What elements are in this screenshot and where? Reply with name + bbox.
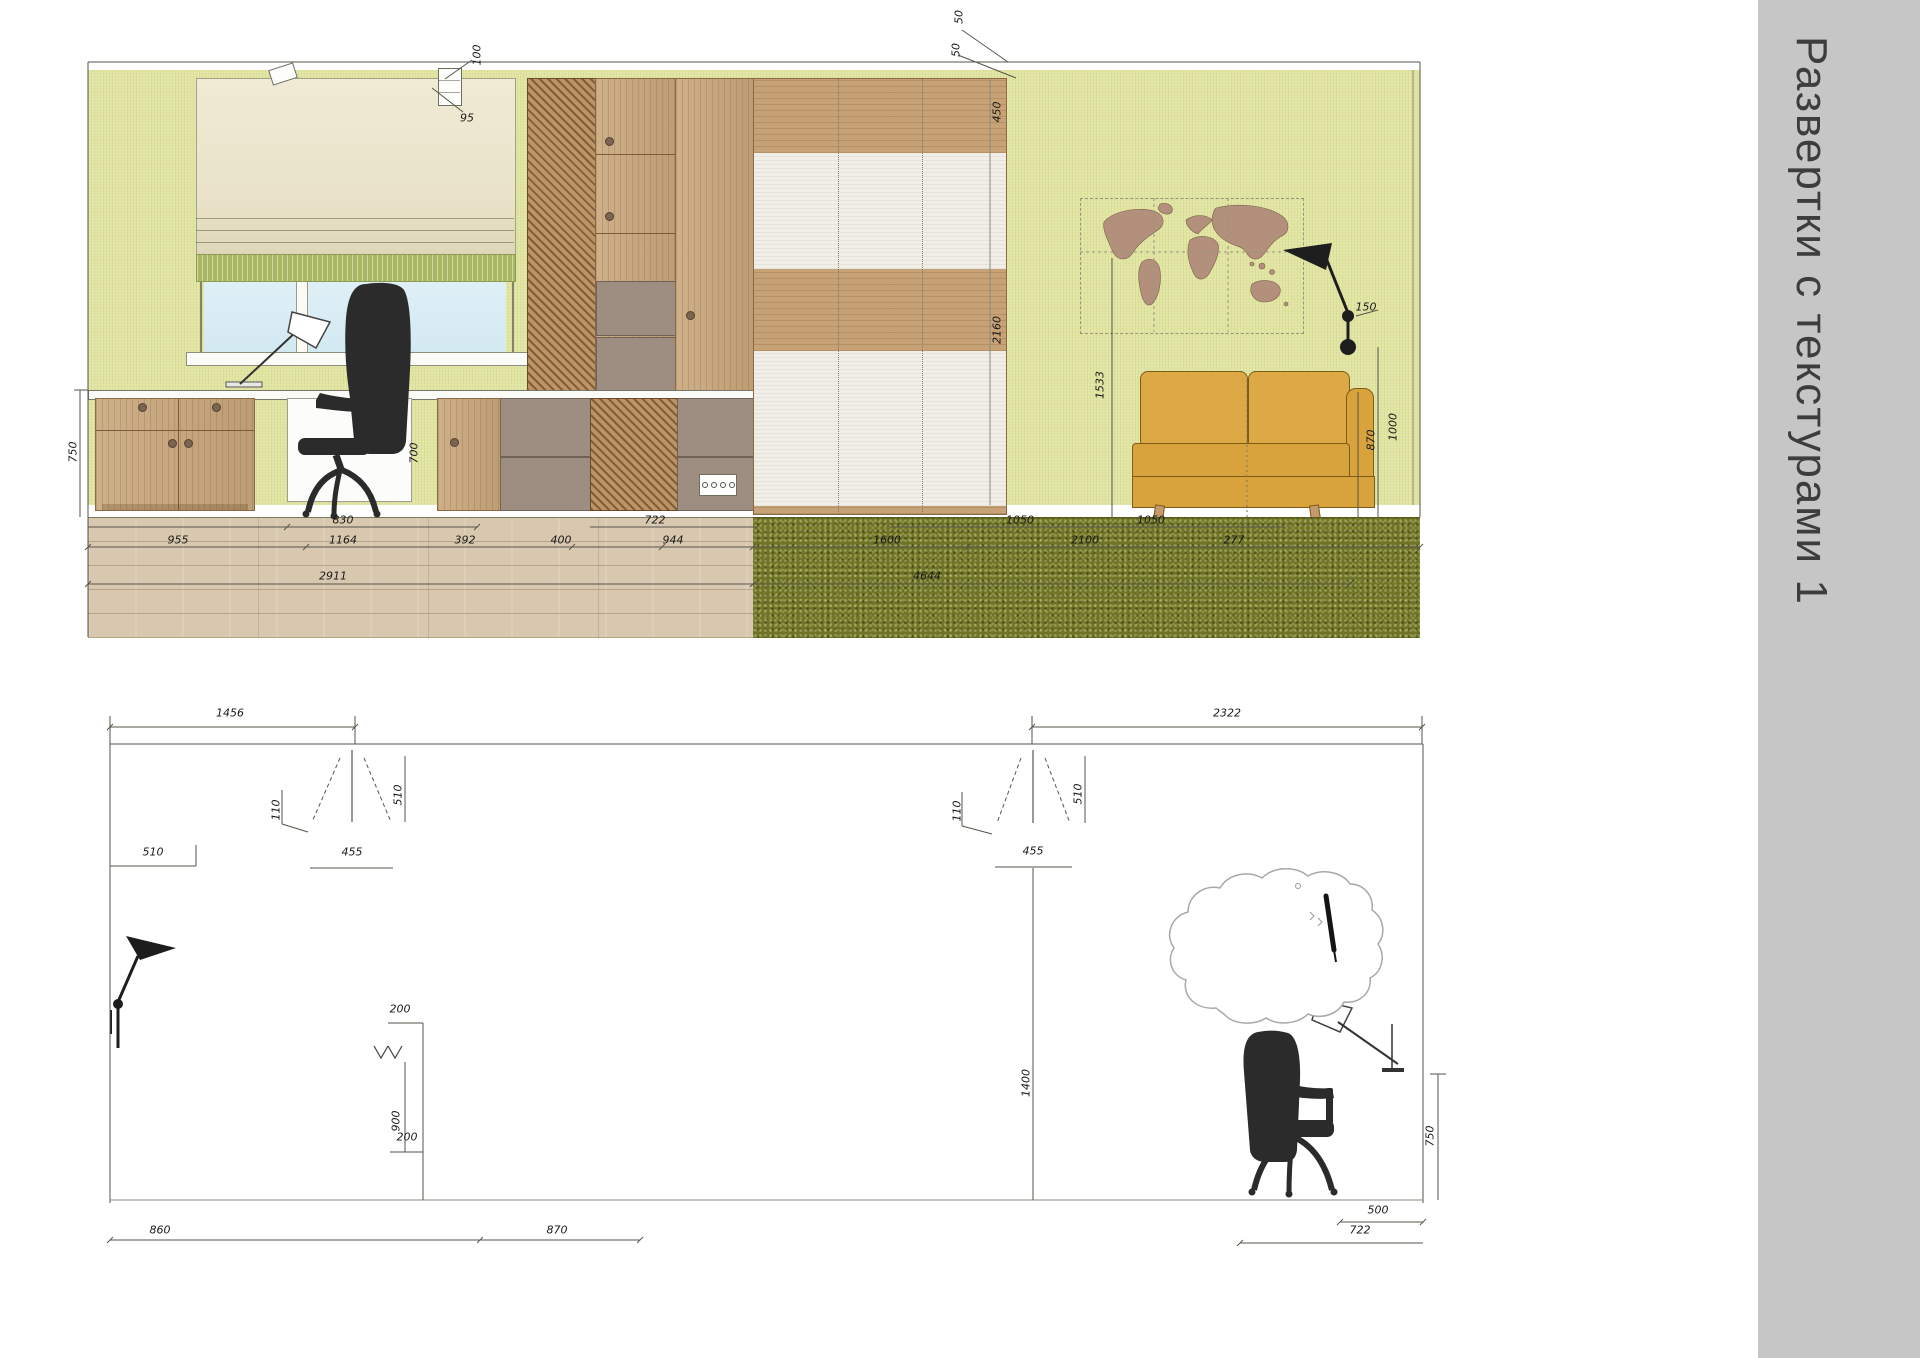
dimension-label: 722	[1350, 1224, 1371, 1237]
drawing-sheet: MEOW	[0, 0, 1920, 1358]
dimension-label: 2322	[1213, 707, 1241, 720]
dimension-label: 1400	[1020, 1069, 1033, 1097]
dimension-label: 1600	[873, 534, 901, 547]
dimension-label: 50	[950, 43, 963, 57]
dimension-label: 150	[1356, 301, 1377, 314]
dimension-label: 944	[663, 534, 684, 547]
dimension-label: 110	[270, 800, 283, 821]
dimension-label: 870	[1365, 430, 1378, 451]
dimension-label: 200	[397, 1131, 418, 1144]
dimension-label: 900	[390, 1111, 403, 1132]
dimension-label: 1164	[329, 534, 357, 547]
dimension-label: 510	[1072, 784, 1085, 805]
dimension-label: 510	[143, 846, 164, 859]
dimension-label: 1000	[1387, 413, 1400, 441]
dimension-label: 100	[471, 45, 484, 66]
dimension-label: 392	[455, 534, 476, 547]
dimension-label: 955	[168, 534, 189, 547]
dimension-label: 1050	[1137, 514, 1165, 527]
dimension-label: 830	[333, 514, 354, 527]
dimension-label: 200	[390, 1003, 411, 1016]
dimension-label: 2911	[319, 570, 347, 583]
dimension-label: 4644	[913, 570, 941, 583]
dimension-label: 500	[1368, 1204, 1389, 1217]
dimension-label: 700	[408, 443, 421, 464]
dimension-label: 870	[547, 1224, 568, 1237]
dimension-label: 50	[953, 10, 966, 24]
dimension-label: 95	[460, 112, 474, 125]
dimension-label: 450	[991, 102, 1004, 123]
dimension-label: 277	[1224, 534, 1245, 547]
dimension-label: 455	[342, 846, 363, 859]
dimension-layer: 7501009550504502160153315087010007008307…	[0, 0, 1920, 1358]
sheet-title: Развертки с текстурами 1	[1786, 36, 1836, 606]
dimension-label: 1456	[216, 707, 244, 720]
dimension-label: 510	[392, 785, 405, 806]
sidebar: Развертки с текстурами 1	[1758, 0, 1920, 1358]
dimension-label: 2100	[1071, 534, 1099, 547]
dimension-label: 860	[150, 1224, 171, 1237]
dimension-label: 722	[645, 514, 666, 527]
dimension-label: 455	[1023, 845, 1044, 858]
dimension-label: 1533	[1094, 371, 1107, 399]
dimension-label: 750	[67, 442, 80, 463]
dimension-label: 2160	[991, 316, 1004, 344]
dimension-label: 750	[1424, 1126, 1437, 1147]
dimension-label: 400	[551, 534, 572, 547]
dimension-label: 110	[951, 801, 964, 822]
dimension-label: 1050	[1006, 514, 1034, 527]
